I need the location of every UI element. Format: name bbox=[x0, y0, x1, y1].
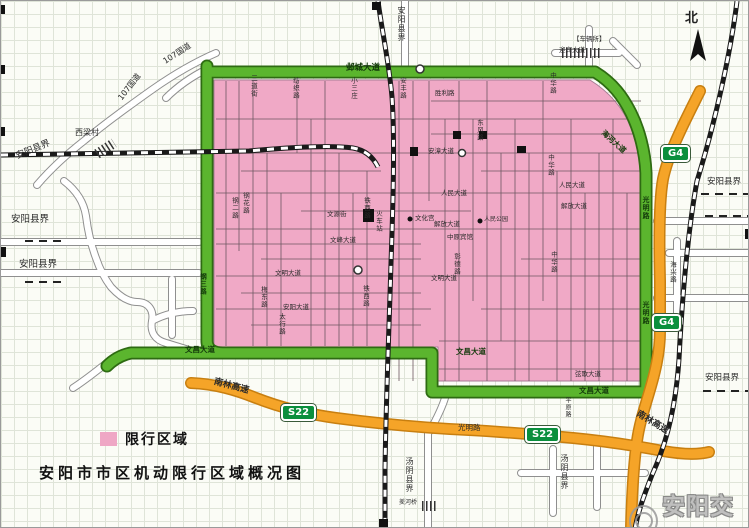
s22-badge-east: S22 bbox=[525, 426, 560, 443]
county-boundary-label: 安阳县界 bbox=[705, 374, 739, 383]
watermark: 安阳交警 bbox=[629, 487, 748, 528]
road-label: 三道街 bbox=[250, 75, 257, 98]
county-boundary-label: 安阳县界 bbox=[11, 215, 49, 225]
poi-label: 人民公园 bbox=[484, 217, 508, 223]
station-label: 火车站 bbox=[375, 210, 382, 233]
county-boundary-label: 安阳县界 bbox=[19, 260, 57, 270]
road-label: 海兴路 bbox=[669, 261, 676, 284]
road-label: 胜利路 bbox=[435, 90, 455, 97]
road-label: 解放大道 bbox=[434, 221, 460, 228]
boundary-road-label: 文昌大道 bbox=[456, 348, 486, 356]
legend-swatch bbox=[100, 432, 117, 446]
road-label: 钢二路 bbox=[231, 197, 238, 220]
compass-north-label: 北 bbox=[685, 7, 698, 26]
road-label: 弦歌大道 bbox=[575, 371, 601, 378]
county-boundary-label: 安阳县界 bbox=[707, 178, 741, 187]
road-label: 文明大道 bbox=[275, 270, 301, 277]
road-label: 钢花路 bbox=[242, 192, 249, 215]
boundary-road-label: 邺城大道 bbox=[346, 64, 380, 73]
road-label: 人民大道 bbox=[559, 182, 585, 189]
county-boundary-label: 汤阴县界 bbox=[560, 454, 568, 490]
s22-badge-west: S22 bbox=[281, 404, 316, 421]
road-label: 中华路 bbox=[550, 251, 557, 274]
poi-label: 【车辆所】 bbox=[573, 36, 606, 43]
road-label: 纺织路 bbox=[292, 77, 299, 100]
road-label: 安漳大道 bbox=[428, 148, 454, 155]
road-label: 中华路 bbox=[549, 72, 556, 95]
road-label: 安阳大道 bbox=[283, 304, 309, 311]
police-badge-icon bbox=[629, 505, 658, 528]
road-label: 梅东路 bbox=[260, 286, 267, 309]
poi-label: 文化宫 bbox=[415, 215, 435, 222]
road-label: 彰德路 bbox=[453, 253, 460, 276]
boundary-road-label: 光明路 bbox=[642, 301, 649, 325]
road-label: 铁西路 bbox=[362, 285, 369, 308]
road-label: 太行路 bbox=[278, 313, 285, 336]
map: 107国道107国道西梁村安阳县界安阳县界安阳县界安阳县界安阳县界安阳县界汤阴县… bbox=[0, 0, 749, 528]
road-label: 东风路 bbox=[476, 119, 483, 142]
road-label: 中华路 bbox=[547, 154, 554, 177]
bridge-label: 羑河桥 bbox=[399, 500, 417, 506]
g4-badge-north: G4 bbox=[661, 145, 690, 162]
map-title: 安阳市市区机动限行区域概况图 bbox=[39, 462, 305, 483]
road-label: 小三庄 bbox=[350, 77, 357, 100]
road-label: 解放大道 bbox=[561, 203, 587, 210]
road-label: 铁西路 bbox=[363, 197, 370, 220]
poi-dot bbox=[408, 217, 413, 222]
county-boundary-label: 汤阴县界 bbox=[405, 457, 413, 493]
road-label: 文峰大道 bbox=[330, 237, 356, 244]
boundary-road-label: 文昌大道 bbox=[579, 387, 609, 395]
compass: 北 bbox=[685, 7, 698, 26]
g4-badge-south: G4 bbox=[652, 314, 681, 331]
poi-dot bbox=[478, 219, 483, 224]
county-boundary-label: 安阳县界 bbox=[397, 6, 405, 42]
north-arrow-icon bbox=[690, 29, 706, 61]
village-label: 西梁村 bbox=[75, 129, 99, 137]
road-label: 人民大道 bbox=[441, 190, 467, 197]
road-label: 文源街 bbox=[327, 211, 347, 218]
legend-label: 限行区域 bbox=[125, 429, 189, 449]
road-label: 安丰路 bbox=[399, 77, 406, 100]
legend: 限行区域 bbox=[100, 429, 189, 449]
boundary-road-label: 钢三路 bbox=[199, 273, 206, 296]
boundary-road-label: 文昌大道 bbox=[185, 346, 215, 354]
watermark-text: 安阳交警 bbox=[662, 487, 748, 528]
road-label: 光明路 bbox=[458, 424, 481, 432]
road-label: 迎宾大道 bbox=[559, 47, 585, 54]
poi-label: 中原宾馆 bbox=[447, 234, 473, 241]
road-label: 平原路 bbox=[564, 397, 570, 418]
boundary-road-label: 光明路 bbox=[642, 196, 649, 220]
